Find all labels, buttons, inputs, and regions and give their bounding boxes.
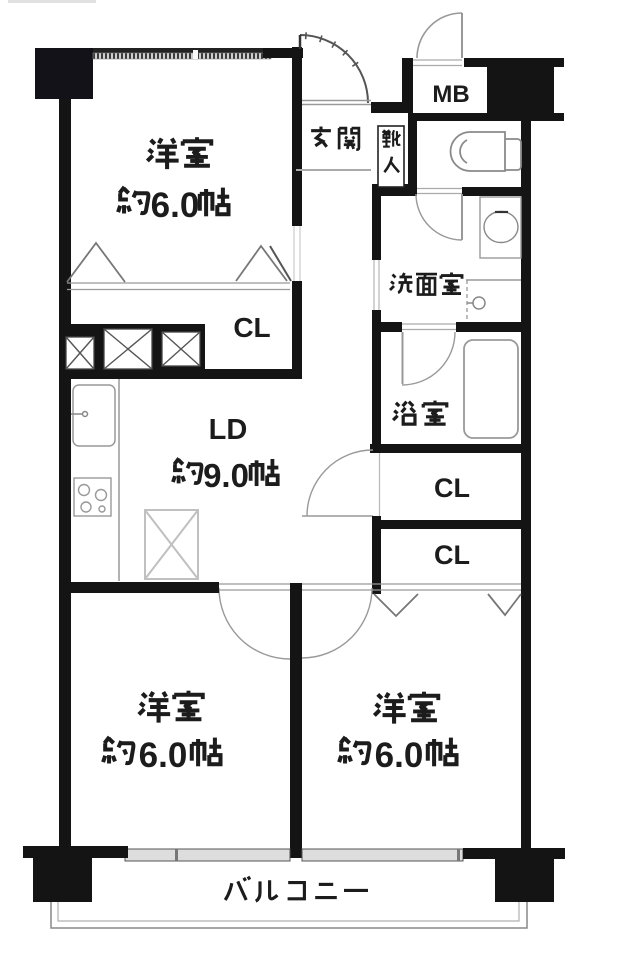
- svg-text:LD: LD: [209, 414, 248, 446]
- svg-text:6.0: 6.0: [139, 736, 188, 775]
- svg-text:CL: CL: [434, 473, 470, 503]
- svg-text:CL: CL: [434, 540, 470, 570]
- svg-text:MB: MB: [432, 81, 469, 108]
- svg-text:6.0: 6.0: [151, 186, 200, 225]
- svg-text:6.0: 6.0: [375, 736, 424, 775]
- svg-text:9.0: 9.0: [203, 457, 249, 494]
- svg-text:CL: CL: [233, 312, 270, 343]
